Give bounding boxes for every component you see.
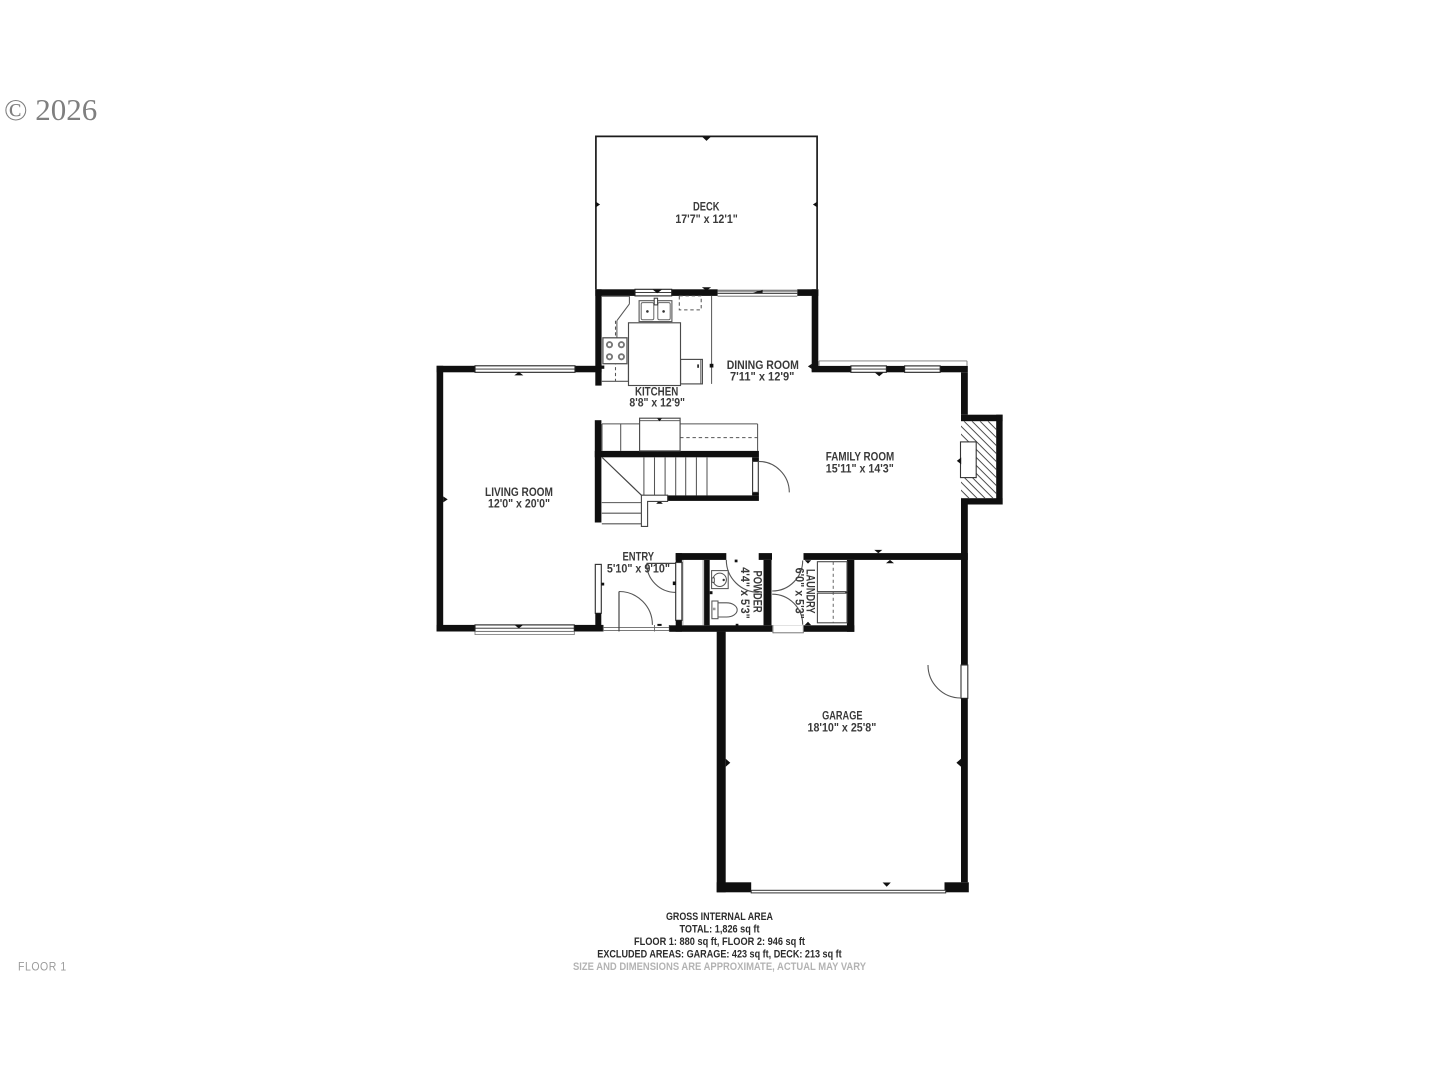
svg-text:17'7" x 12'1": 17'7" x 12'1" [675, 213, 738, 226]
svg-text:GROSS INTERNAL AREA: GROSS INTERNAL AREA [666, 911, 773, 923]
svg-text:FLOOR 1: 880 sq ft, FLOOR 2: 9: FLOOR 1: 880 sq ft, FLOOR 2: 946 sq ft [634, 936, 805, 948]
svg-text:SIZE AND DIMENSIONS ARE APPROX: SIZE AND DIMENSIONS ARE APPROXIMATE, ACT… [573, 961, 867, 973]
svg-text:GARAGE: GARAGE [822, 709, 863, 723]
svg-text:TOTAL: 1,826 sq ft: TOTAL: 1,826 sq ft [680, 924, 760, 936]
svg-text:POWDER: POWDER [750, 570, 764, 613]
svg-text:15'11" x 14'3": 15'11" x 14'3" [826, 462, 894, 475]
svg-text:18'10" x 25'8": 18'10" x 25'8" [808, 722, 877, 735]
svg-text:7'11" x 12'9": 7'11" x 12'9" [730, 370, 794, 383]
svg-text:8'8" x 12'9": 8'8" x 12'9" [629, 397, 685, 410]
svg-text:5'10" x 9'10": 5'10" x 9'10" [607, 562, 670, 575]
svg-text:6'0" x 5'3": 6'0" x 5'3" [793, 568, 806, 619]
svg-text:FAMILY ROOM: FAMILY ROOM [826, 449, 895, 463]
svg-text:4'4" x 5'3": 4'4" x 5'3" [738, 567, 751, 619]
svg-text:12'0" x 20'0": 12'0" x 20'0" [488, 497, 550, 510]
svg-text:FLOOR 1: FLOOR 1 [18, 960, 67, 973]
svg-text:© 2026: © 2026 [4, 92, 97, 127]
svg-text:EXCLUDED AREAS: GARAGE: 423 sq: EXCLUDED AREAS: GARAGE: 423 sq ft, DECK:… [597, 949, 842, 961]
svg-text:ENTRY: ENTRY [623, 549, 655, 563]
svg-text:DECK: DECK [693, 200, 720, 214]
